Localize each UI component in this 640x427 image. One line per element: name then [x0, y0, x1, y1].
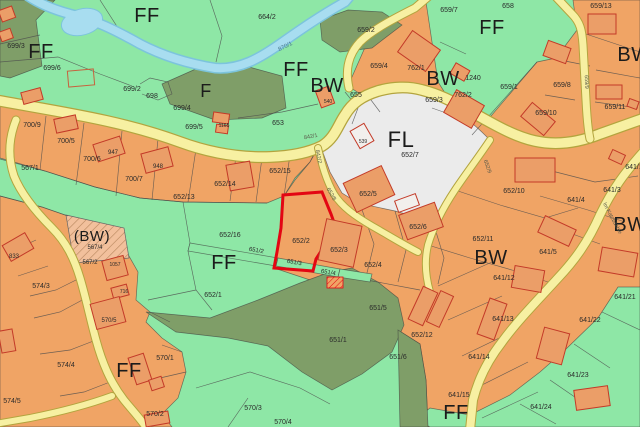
parcel-label: 574/4 [57, 362, 75, 369]
parcel-label: 570/2 [146, 411, 164, 418]
parcel-label: 658 [502, 3, 514, 10]
parcel-label: 641/24 [530, 404, 552, 411]
parcel-label: 762/1 [407, 65, 425, 72]
map-canvas[interactable]: FFFFFFFBWBWFFBWFLBW(BW)FFFFBWFF699/3699/… [0, 0, 640, 427]
parcel-label: 659/3 [425, 97, 443, 104]
parcel-label: 659/1 [500, 84, 518, 91]
parcel-label: 641/15 [448, 392, 470, 399]
parcel-label: 641/4 [567, 197, 585, 204]
parcel-label: 652/12 [411, 332, 433, 339]
cadastral-map-view[interactable]: FFFFFFFBWBWFFBWFLBW(BW)FFFFBWFF699/3699/… [0, 0, 640, 427]
parcel-label: 652/11 [473, 236, 494, 243]
parcel-label: 539 [359, 139, 368, 145]
zone-label: FF [479, 17, 504, 39]
parcel-label: 1240 [465, 75, 481, 82]
building [596, 85, 622, 99]
parcel-label: 540 [324, 99, 333, 105]
parcel-label: 652/7 [401, 152, 419, 159]
building [574, 386, 610, 411]
parcel-label: 574/5 [3, 398, 21, 405]
road-label: 659/9 [583, 75, 589, 89]
parcel-label: 716 [120, 289, 129, 295]
parcel-label: 652/16 [219, 232, 241, 239]
zone-label: FF [283, 59, 308, 81]
zone-label: FF [211, 252, 236, 274]
zone-label: FF [134, 5, 159, 27]
parcel-label: 948 [153, 164, 164, 170]
parcel-label: 655 [350, 92, 362, 99]
parcel-label: 659/10 [535, 110, 557, 117]
parcel-label: 699/4 [173, 105, 191, 112]
parcel-label: 652/1 [204, 292, 222, 299]
parcel-label: 762/2 [454, 92, 472, 99]
parcel-label: 641/22 [579, 317, 601, 324]
parcel-651-4-hatched [327, 277, 343, 288]
parcel-label: 567/1 [21, 165, 39, 172]
parcel-label: 652/3 [330, 247, 348, 254]
parcel-label: 659/8 [553, 82, 571, 89]
parcel-label: 699/5 [185, 124, 203, 131]
zone-label: F [200, 81, 212, 101]
parcel-label: 659/4 [370, 63, 388, 70]
parcel-label: 664/2 [258, 14, 276, 21]
parcel-label: 651/5 [369, 305, 387, 312]
zone-label: FL [388, 127, 415, 152]
zone-label: BW [617, 44, 640, 66]
parcel-label: 698 [146, 93, 158, 100]
parcel-label: 641/1 [625, 164, 640, 171]
parcel-label: 574/3 [32, 283, 50, 290]
zone-label: (BW) [74, 228, 110, 245]
parcel-label: 700/9 [23, 122, 41, 129]
parcel-label: 700/6 [83, 156, 101, 163]
parcel-label: 652/4 [364, 262, 382, 269]
zone-label: FF [443, 402, 468, 424]
parcel-label: 641/23 [567, 372, 589, 379]
zone-label: BW [426, 68, 459, 90]
parcel-label: 651/1 [329, 337, 347, 344]
parcel-label: 567/2 [82, 260, 98, 266]
parcel-label: 641/14 [468, 354, 490, 361]
parcel-label: 700/5 [57, 138, 75, 145]
parcel-label: 651/6 [389, 354, 407, 361]
parcel-label: 652/2 [292, 238, 310, 245]
parcel-label: 659/13 [590, 3, 612, 10]
building [588, 14, 616, 34]
parcel-label: 570/5 [101, 318, 117, 324]
parcel-label: 652/10 [503, 188, 525, 195]
zone-label: FF [28, 41, 53, 63]
zone-label: BW [310, 75, 343, 97]
parcel-label: 699/2 [123, 86, 141, 93]
building [511, 266, 544, 293]
parcel-label: 652/6 [409, 224, 427, 231]
zone-label: FF [116, 360, 141, 382]
parcel-label: 659/11 [605, 104, 626, 111]
parcel-label: 652/13 [173, 194, 195, 201]
building [515, 158, 555, 182]
parcel-label: 659/7 [440, 7, 458, 14]
parcel-label: 833 [9, 254, 20, 260]
parcel-label: 1165 [219, 123, 230, 129]
parcel-label: 567/4 [87, 245, 103, 251]
parcel-label: 652/14 [214, 181, 236, 188]
parcel-label: 641/13 [492, 316, 514, 323]
parcel-label: 947 [108, 150, 119, 156]
parcel-label: 570/4 [274, 419, 292, 426]
parcel-label: 699/6 [43, 65, 61, 72]
parcel-label: 652/15 [269, 168, 291, 175]
parcel-label: 653 [272, 120, 284, 127]
parcel-label: 641/21 [614, 294, 636, 301]
parcel-label: 641/3 [603, 187, 621, 194]
parcel-label: 659/2 [357, 27, 375, 34]
parcel-label: 1057 [109, 262, 120, 268]
parcel-label: 699/3 [7, 43, 25, 50]
parcel-label: 652/5 [359, 191, 377, 198]
parcel-label: 570/1 [156, 355, 174, 362]
parcel-label: 700/7 [125, 176, 143, 183]
parcel-label: 641/5 [539, 249, 557, 256]
parcel-label: 641/12 [493, 275, 515, 282]
parcel-label: 570/3 [244, 405, 262, 412]
zone-label: BW [474, 247, 507, 269]
